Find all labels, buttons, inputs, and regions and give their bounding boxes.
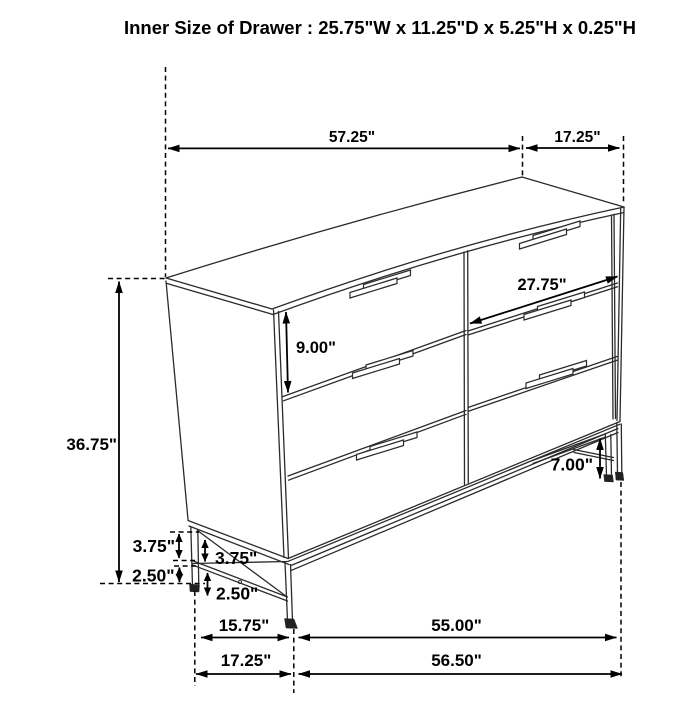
svg-text:9.00": 9.00" [296,339,336,357]
svg-text:2.50": 2.50" [132,566,174,586]
svg-text:36.75": 36.75" [66,435,117,454]
svg-text:55.00": 55.00" [431,616,482,635]
svg-text:3.75": 3.75" [133,536,175,556]
svg-text:3.75": 3.75" [215,548,257,568]
svg-text:17.25": 17.25" [554,129,600,146]
svg-text:7.00": 7.00" [551,455,593,475]
svg-text:57.25": 57.25" [329,129,375,146]
svg-text:15.75": 15.75" [219,616,270,635]
svg-text:56.50": 56.50" [431,651,482,670]
svg-text:27.75": 27.75" [517,276,566,294]
svg-text:2.50": 2.50" [216,584,258,604]
svg-text:Inner Size of Drawer : 25.75"W: Inner Size of Drawer : 25.75"W x 11.25"D… [124,18,636,38]
svg-text:17.25": 17.25" [221,651,272,670]
